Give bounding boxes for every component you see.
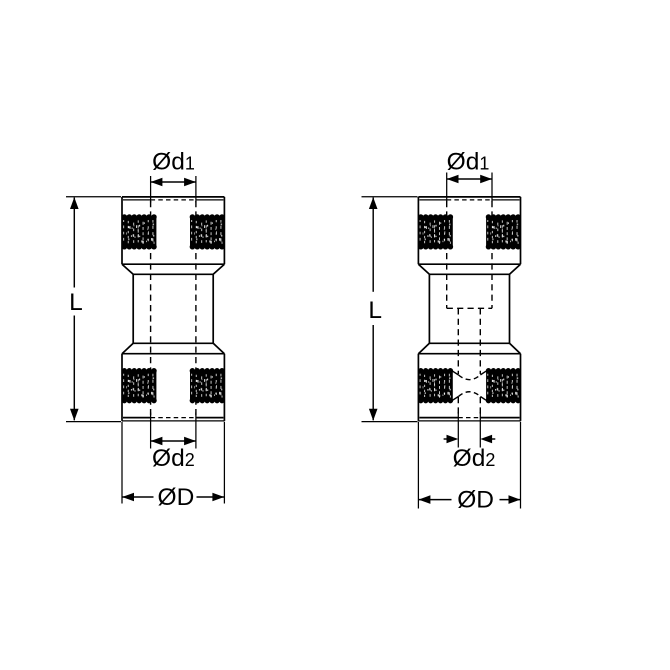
svg-text:ØD: ØD <box>457 487 494 514</box>
svg-text:L: L <box>69 289 83 316</box>
svg-text:ØD: ØD <box>158 484 195 511</box>
svg-text:Ød1: Ød1 <box>447 148 490 175</box>
svg-text:Ød2: Ød2 <box>453 445 496 472</box>
svg-text:Ød2: Ød2 <box>152 445 195 472</box>
svg-text:Ød1: Ød1 <box>152 149 195 176</box>
svg-text:L: L <box>368 297 382 324</box>
